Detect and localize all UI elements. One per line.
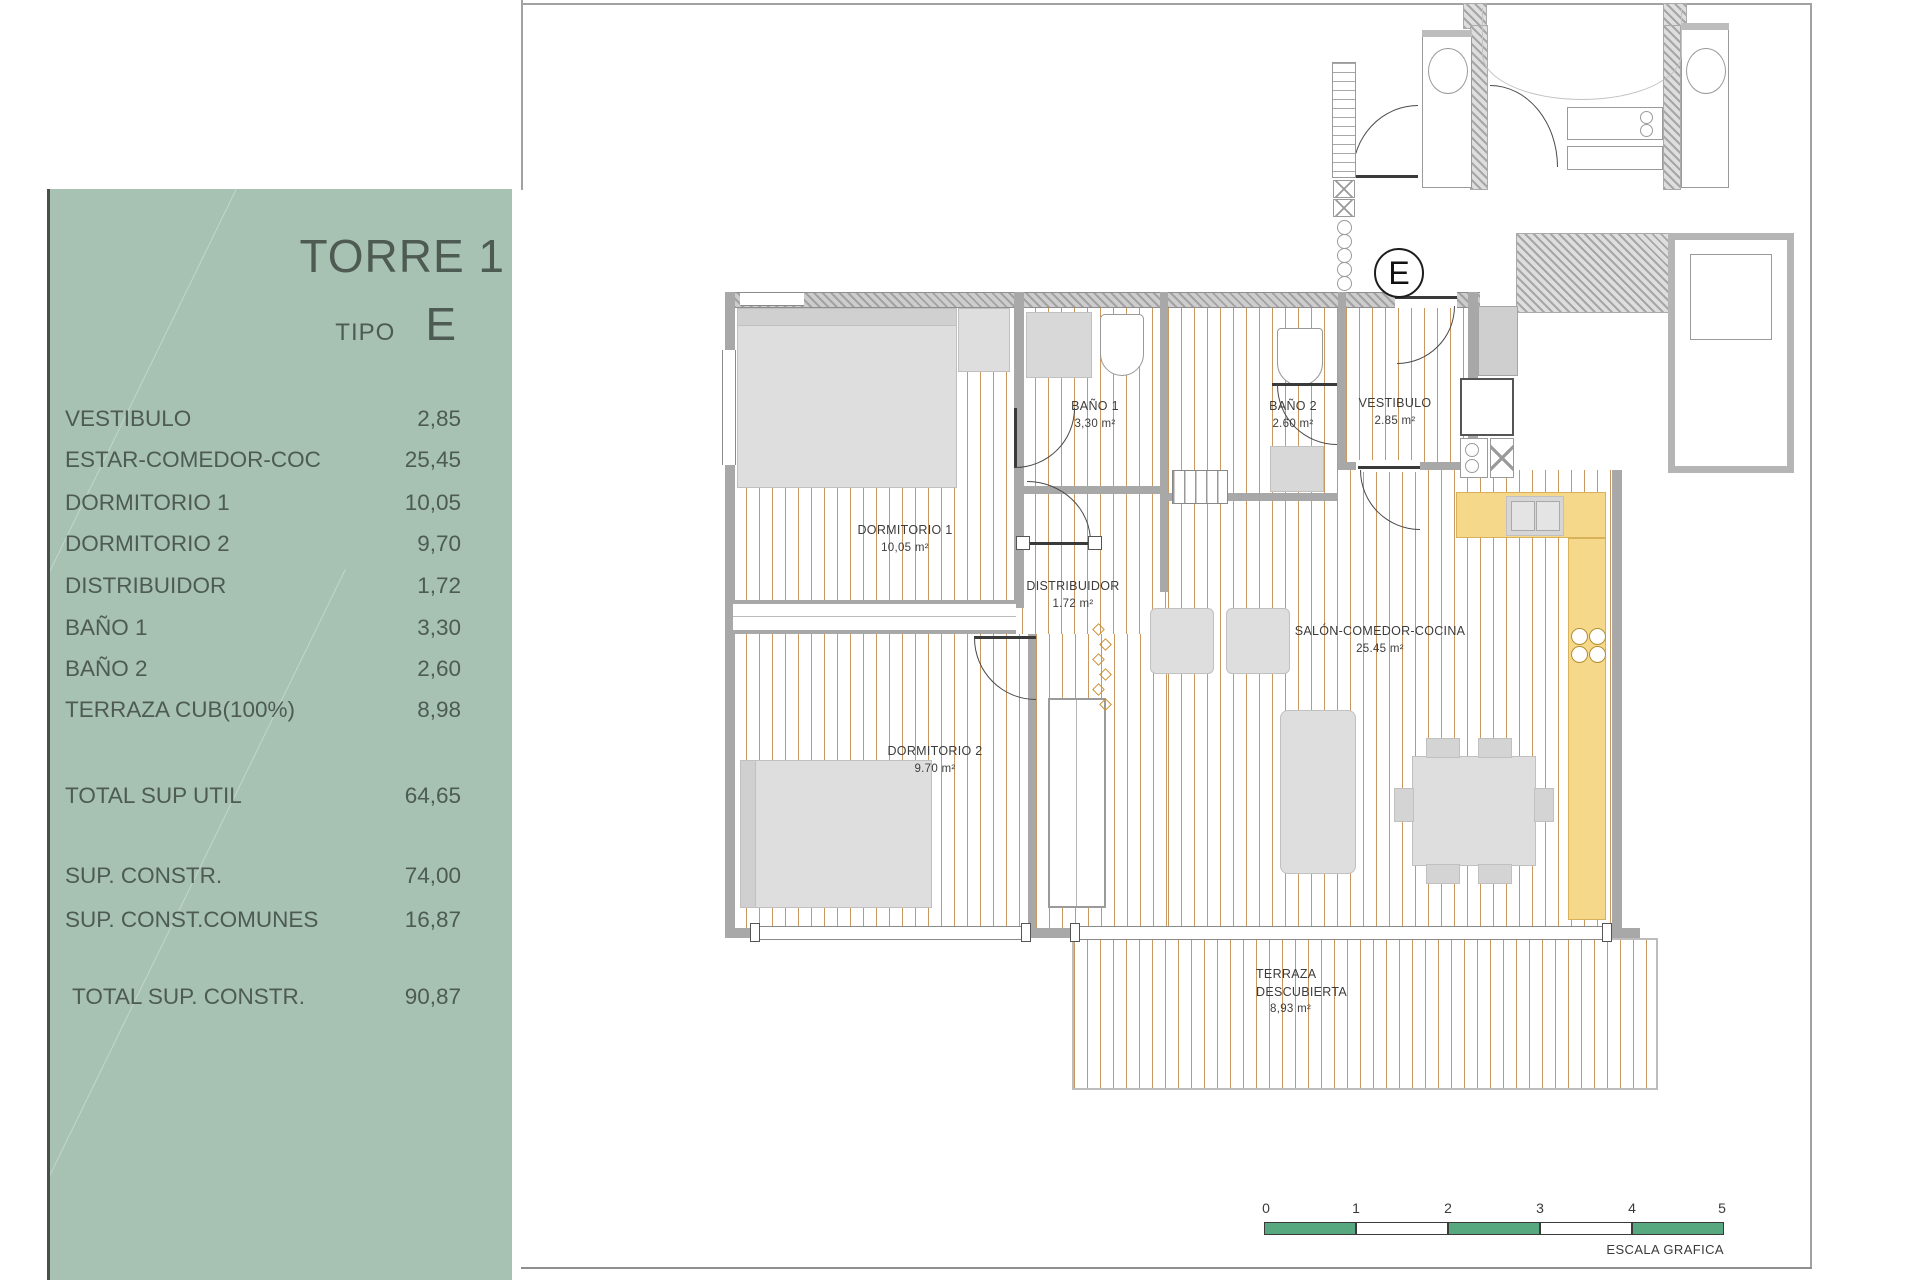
dining-table bbox=[1412, 756, 1536, 866]
washer-column bbox=[1172, 470, 1228, 504]
dorm2-bed bbox=[740, 760, 932, 908]
scale-segment-green bbox=[1264, 1222, 1356, 1235]
room-name: VESTIBULO bbox=[1340, 395, 1450, 413]
stair-strip bbox=[1332, 62, 1356, 178]
salon-glazing bbox=[1080, 926, 1604, 940]
stove-burner bbox=[1589, 628, 1606, 645]
dorm2-bed-headboard bbox=[740, 760, 756, 908]
landing-door-swing bbox=[1352, 105, 1418, 175]
vestibulo-salon-leaf bbox=[1358, 466, 1420, 469]
fridge bbox=[1460, 378, 1514, 436]
room-area: 1.72 m² bbox=[1013, 596, 1133, 612]
wardrobe-band bbox=[733, 600, 1016, 634]
dining-chair bbox=[1534, 788, 1554, 822]
dining-chair bbox=[1478, 864, 1512, 884]
room-name: BAÑO 1 bbox=[1040, 398, 1150, 416]
room-area: 3,30 m² bbox=[1040, 416, 1150, 432]
dorm1-door-leaf bbox=[1025, 542, 1091, 545]
riser-dot bbox=[1337, 262, 1352, 277]
scale-bar: 0 1 2 3 4 5 ESCALA GRAFICA bbox=[1264, 1200, 1724, 1256]
riser-dot bbox=[1337, 248, 1352, 263]
exterior-wall-top bbox=[725, 292, 1480, 308]
room-label-dormitorio2: DORMITORIO 2 9.70 m² bbox=[865, 743, 1005, 777]
wall-bano2-vestibulo bbox=[1338, 292, 1346, 470]
room-area: 10,05 m² bbox=[830, 540, 980, 556]
door-jamb bbox=[1088, 536, 1102, 550]
scale-tick: 5 bbox=[1718, 1200, 1726, 1216]
room-name: SALÓN-COMEDOR-COCINA bbox=[1290, 623, 1470, 641]
elevator-symbol bbox=[1428, 48, 1468, 94]
kitchen-duct bbox=[1478, 306, 1518, 376]
salon-floor bbox=[1168, 470, 1612, 928]
scale-tick: 3 bbox=[1536, 1200, 1544, 1216]
dining-chair bbox=[1426, 738, 1460, 758]
hall-storage-line bbox=[1076, 700, 1077, 906]
room-area: 9.70 m² bbox=[865, 761, 1005, 777]
room-label-dormitorio1: DORMITORIO 1 10,05 m² bbox=[830, 522, 980, 556]
dining-chair bbox=[1394, 788, 1414, 822]
elevator-symbol bbox=[1686, 48, 1726, 94]
duct-box bbox=[1333, 180, 1355, 198]
unit-type-badge: E bbox=[1374, 248, 1424, 298]
room-name: DORMITORIO 2 bbox=[865, 743, 1005, 761]
scale-tick: 2 bbox=[1444, 1200, 1452, 1216]
stove-burner bbox=[1571, 628, 1588, 645]
room-label-distribuidor: DISTRIBUIDOR 1.72 m² bbox=[1013, 578, 1133, 612]
riser-dot bbox=[1337, 234, 1352, 249]
window-jamb bbox=[1021, 923, 1031, 942]
dorm1-bed bbox=[737, 308, 957, 488]
oven-knob bbox=[1465, 443, 1479, 457]
room-area: 2.85 m² bbox=[1340, 413, 1450, 429]
door-jamb bbox=[1016, 536, 1030, 550]
window-jamb bbox=[1070, 923, 1080, 942]
room-area: 8,93 m² bbox=[1256, 1001, 1351, 1017]
bano2-vanity bbox=[1270, 446, 1324, 492]
kitchen-sink-bowl bbox=[1536, 501, 1560, 531]
terraza-floor bbox=[1072, 938, 1658, 1090]
unit-type-letter: E bbox=[1388, 255, 1409, 292]
scale-tick: 1 bbox=[1352, 1200, 1360, 1216]
room-label-vestibulo: VESTIBULO 2.85 m² bbox=[1340, 395, 1450, 429]
dining-chair bbox=[1478, 738, 1512, 758]
scale-segment-green bbox=[1632, 1222, 1724, 1235]
counter-knob bbox=[1640, 111, 1653, 124]
exterior-wall-right bbox=[1612, 470, 1622, 938]
stove-burner bbox=[1589, 646, 1606, 663]
counter-knob bbox=[1640, 124, 1653, 137]
appliance-unit bbox=[1490, 438, 1514, 478]
dorm1-bed-headboard bbox=[737, 308, 957, 326]
riser-dot bbox=[1337, 276, 1352, 291]
stove-burner bbox=[1571, 646, 1588, 663]
scale-segment-green bbox=[1448, 1222, 1540, 1235]
dorm2-window bbox=[760, 926, 1022, 940]
dorm1-corner-window bbox=[740, 292, 804, 306]
room-name: DORMITORIO 1 bbox=[830, 522, 980, 540]
bano2-shower bbox=[1277, 328, 1323, 386]
elevator-shaft-wall bbox=[1681, 23, 1729, 30]
scale-bar-label: ESCALA GRAFICA bbox=[1606, 1242, 1724, 1257]
dining-chair bbox=[1426, 864, 1460, 884]
riser-dot bbox=[1337, 220, 1352, 235]
duct-box bbox=[1333, 199, 1355, 217]
room-area: 2.60 m² bbox=[1243, 416, 1343, 432]
room-label-terraza: TERRAZA DESCUBIERTA 8,93 m² bbox=[1256, 966, 1351, 1017]
dorm1-window bbox=[722, 350, 736, 465]
stair-curve bbox=[1482, 8, 1682, 100]
scale-tick: 0 bbox=[1262, 1200, 1270, 1216]
neighbour-fixture bbox=[1690, 254, 1772, 340]
room-name: TERRAZA DESCUBIERTA bbox=[1256, 966, 1351, 1001]
armchair bbox=[1226, 608, 1290, 674]
room-name: BAÑO 2 bbox=[1243, 398, 1343, 416]
scale-segment-white bbox=[1356, 1222, 1448, 1235]
scale-segment-white bbox=[1540, 1222, 1632, 1235]
armchair bbox=[1150, 608, 1214, 674]
room-label-bano2: BAÑO 2 2.60 m² bbox=[1243, 398, 1343, 432]
room-name: DISTRIBUIDOR bbox=[1013, 578, 1133, 596]
landing-counter bbox=[1567, 146, 1663, 170]
wall-bano1-bano2 bbox=[1160, 292, 1168, 592]
elevator-shaft-wall bbox=[1422, 30, 1472, 37]
kitchen-sink-bowl bbox=[1511, 501, 1535, 531]
floor-plan: DORMITORIO 1 10,05 m² BAÑO 1 3,30 m² BAÑ… bbox=[0, 0, 1920, 1280]
room-label-bano1: BAÑO 1 3,30 m² bbox=[1040, 398, 1150, 432]
kitchen-counter-side bbox=[1568, 538, 1606, 920]
oven-knob bbox=[1465, 459, 1479, 473]
window-jamb bbox=[750, 923, 760, 942]
sofa bbox=[1280, 710, 1356, 874]
wardrobe-band-line bbox=[733, 616, 1016, 617]
bano1-toilet bbox=[1100, 314, 1144, 376]
dorm1-nightstand bbox=[958, 308, 1010, 372]
room-label-salon: SALÓN-COMEDOR-COCINA 25.45 m² bbox=[1290, 623, 1470, 657]
scale-tick: 4 bbox=[1628, 1200, 1636, 1216]
bano1-vanity bbox=[1026, 312, 1092, 378]
neighbour-wall bbox=[1516, 233, 1670, 313]
room-area: 25.45 m² bbox=[1290, 641, 1470, 657]
window-jamb bbox=[1602, 923, 1612, 942]
landing-door-leaf bbox=[1352, 175, 1418, 178]
